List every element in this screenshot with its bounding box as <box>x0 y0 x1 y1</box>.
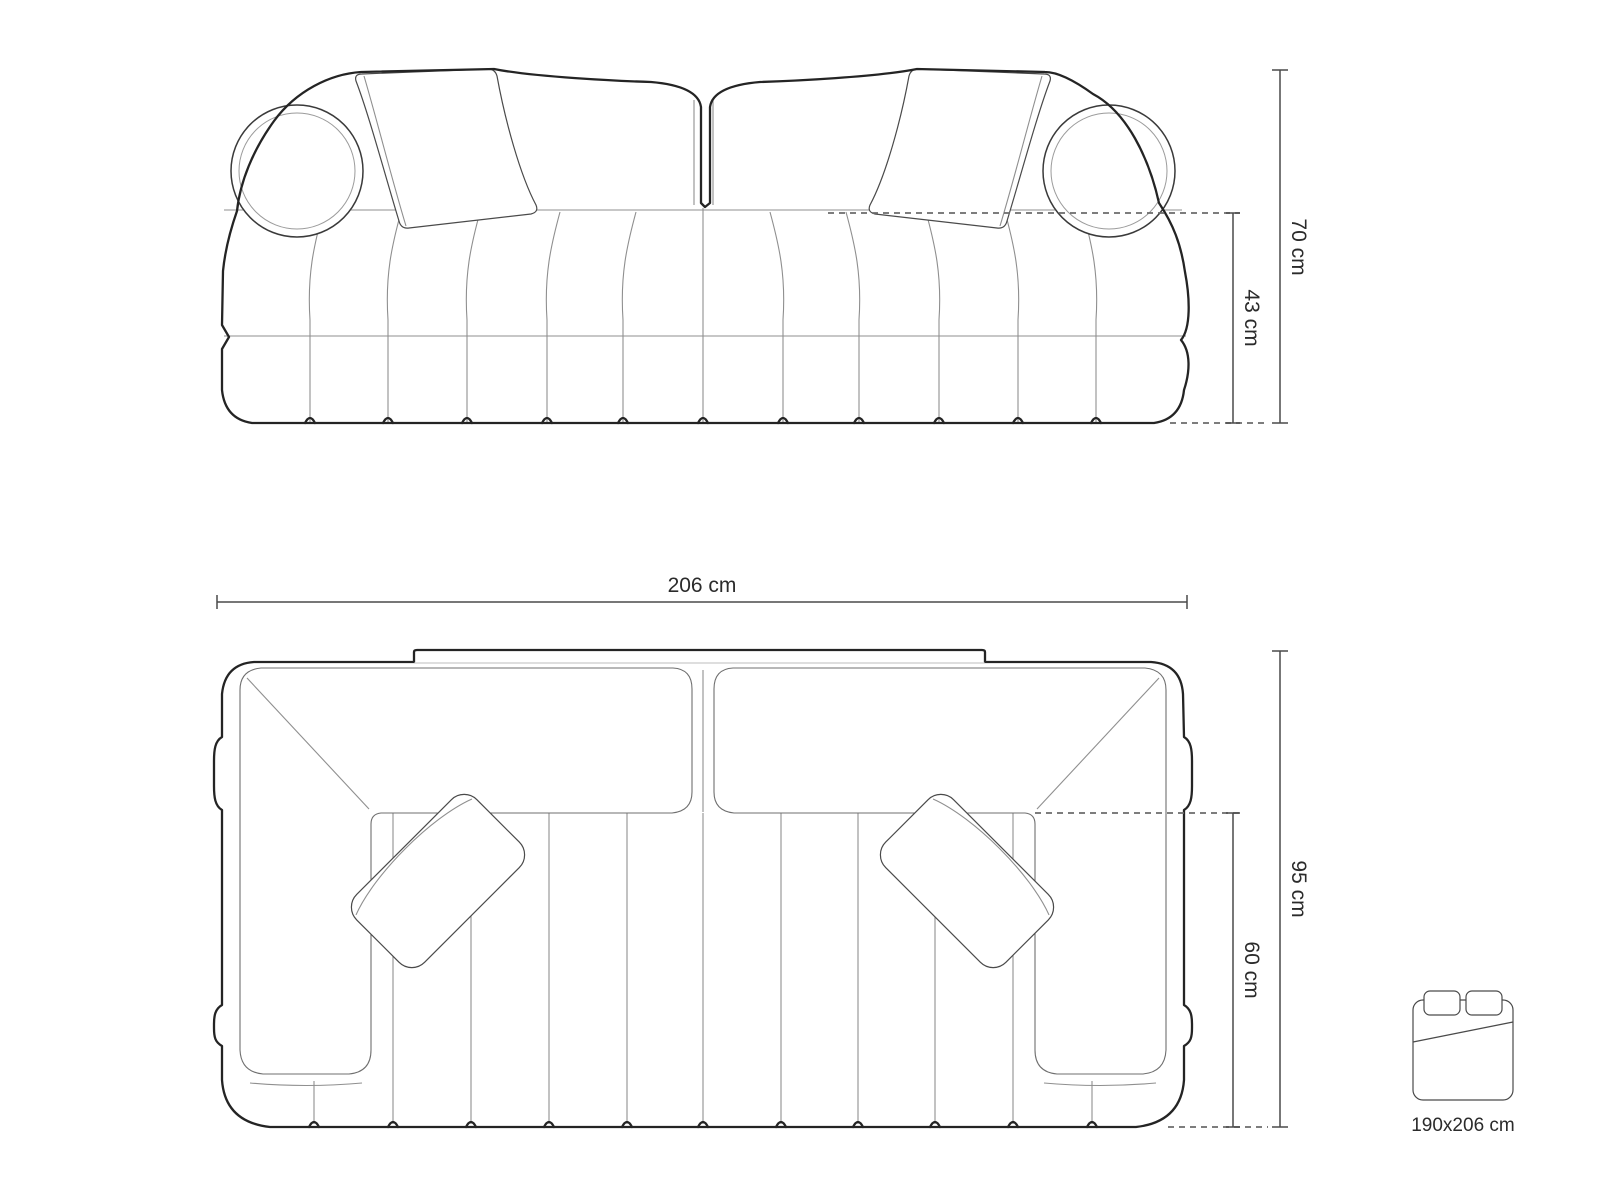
top-view-drawing <box>214 650 1192 1127</box>
diagram-canvas: 43 cm 70 cm <box>0 0 1600 1200</box>
bed-pillow-left <box>1424 991 1460 1015</box>
dim-top-width: 206 cm <box>217 574 1187 609</box>
sleeping-area-size-label: 190x206 cm <box>1411 1115 1515 1136</box>
top-seat-depth-label: 60 cm <box>1240 941 1263 998</box>
front-left-bolster <box>231 105 363 237</box>
bed-icon <box>1413 991 1513 1100</box>
dim-top-depth: 95 cm <box>1272 651 1310 1127</box>
top-width-label: 206 cm <box>668 574 737 597</box>
front-right-bolster <box>1043 105 1175 237</box>
dim-top-seat-depth: 60 cm <box>1226 813 1263 1127</box>
front-right-pillow <box>869 69 1050 228</box>
bed-pillow-right <box>1466 991 1502 1015</box>
top-depth-label: 95 cm <box>1287 860 1310 917</box>
front-left-pillow <box>356 69 537 228</box>
front-view-drawing <box>222 69 1189 423</box>
sofa-dimensions-diagram: 43 cm 70 cm <box>0 0 1600 1200</box>
front-sofa-outline <box>222 69 1189 423</box>
front-seat-height-label: 43 cm <box>1240 289 1263 346</box>
dim-front-total-height: 70 cm <box>1272 70 1310 423</box>
front-total-height-label: 70 cm <box>1287 218 1310 275</box>
sleeping-area-legend: 190x206 cm <box>1411 991 1515 1136</box>
dim-front-seat-height: 43 cm <box>1226 213 1263 423</box>
